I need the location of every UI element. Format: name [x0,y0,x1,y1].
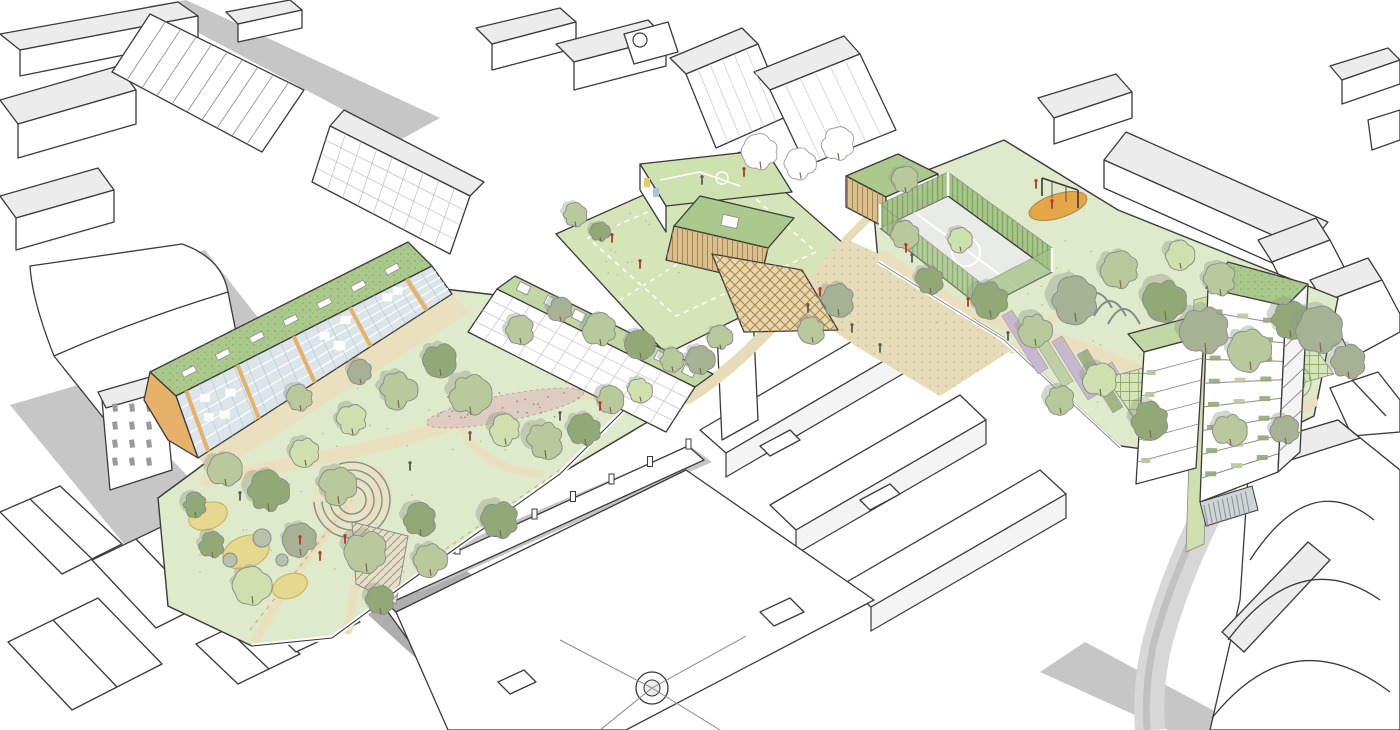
lawn-dot [1041,304,1043,306]
tree-canopy [506,315,534,345]
lawn-dot [627,262,629,264]
lawn-dot [246,529,248,531]
figure-head [850,323,853,326]
lawn-dot [452,449,454,451]
rain-garden-dot [537,403,539,405]
lawn-dot [406,445,408,447]
rain-garden-dot [563,392,565,394]
balcony-planting [1234,399,1245,404]
play-boulder [276,554,288,566]
lawn-dot [911,297,913,299]
balcony-planting [1260,377,1271,382]
lawn-dot [1064,240,1066,242]
balcony-planting [1237,313,1248,318]
balcony-planting [1231,463,1242,468]
balcony-planting [1206,448,1217,453]
lawn-dot [322,433,324,435]
tree-canopy [1330,344,1364,379]
balcony-planting [1208,402,1219,407]
balcony [319,332,329,340]
figure-head [818,287,821,290]
lawn-dot [199,571,201,573]
lawn-dot [1090,251,1092,253]
lawn-dot [629,212,631,214]
lawn-dot [1092,340,1094,342]
balcony-planting [1258,435,1269,440]
lawn-dot [605,261,607,263]
sliver-tr-wall [1368,110,1400,150]
balcony [204,413,214,421]
balcony-planting [1257,455,1268,460]
rain-garden-dot [460,417,462,419]
rain-garden-dot [437,415,439,417]
lawn-dot [504,449,506,451]
figure-head [638,259,641,262]
tree-canopy [422,344,456,378]
lawn-dot [403,571,405,573]
lawn-dot [678,272,680,274]
lawn-dot [357,387,359,389]
masterplan-canvas [0,0,1400,730]
figure-head [966,297,969,300]
lawn-dot [411,494,413,496]
lawn-dot [1068,270,1070,272]
balcony-planting [1210,356,1221,361]
lawn-dot [597,418,599,420]
wall-post [571,492,576,502]
tree [560,200,587,227]
figure-head [1050,199,1053,202]
lawn-dot [271,549,273,551]
balcony-planting [1205,471,1216,476]
rain-garden-dot [502,407,504,409]
balcony [336,343,346,351]
figure-head [700,175,703,178]
wall-post [532,509,537,519]
tree-canopy [1270,415,1299,443]
lawn-dot [1040,285,1042,287]
figure-head [468,431,471,434]
lawn-dot [1097,401,1099,403]
lawn-dot [610,249,612,251]
lawn-dot [935,322,937,324]
lawn-dot [336,445,338,447]
rain-garden-dot [526,412,528,414]
balcony [200,394,210,402]
balcony-planting [1147,370,1156,375]
school-panel [644,178,650,187]
rain-garden-dot [467,414,469,416]
balcony [225,388,235,396]
lawn-dot [300,491,302,493]
balcony-planting [1141,458,1150,463]
lawn-dot [334,568,336,570]
lawn-dot [649,224,651,226]
lawn-dot [615,224,617,226]
figure-head [298,535,301,538]
balcony [220,411,230,419]
rain-garden-dot [516,400,518,402]
lawn-dot [617,274,619,276]
lawn-dot [289,483,291,485]
figure-head [904,243,907,246]
balcony [340,316,350,324]
lawn-dot [199,554,201,556]
cylinder-tower [633,33,647,47]
lawn-dot [945,322,947,324]
lawn-dot [242,529,244,531]
figure-head [910,253,913,256]
rain-garden-dot [440,412,442,414]
lawn-dot [607,272,609,274]
balcony [382,293,392,301]
rain-garden-dot [554,416,556,418]
lawn-dot [386,428,388,430]
lawn-dot [369,425,371,427]
tree-canopy [207,453,242,487]
rain-garden-dot [547,396,549,398]
rain-garden-dot [524,399,526,401]
play-boulder [253,529,271,547]
lawn-dot [1056,267,1058,269]
figure-head [238,491,241,494]
rain-garden-dot [533,403,535,405]
figure-head [598,401,601,404]
figure-head [343,534,346,537]
lawn-dot [906,284,908,286]
balcony-planting [1235,378,1246,383]
lawn-dot [631,261,633,263]
lawn-dot [1139,354,1141,356]
lawn-dot [428,409,430,411]
wall-post [686,439,691,449]
tree-canopy [660,348,683,373]
masterplan-illustration [0,0,1400,730]
lawn-dot [480,441,482,443]
rain-garden-dot [464,416,466,418]
figure-head [318,551,321,554]
rain-garden-dot [498,392,500,394]
figure-head [878,343,881,346]
rain-garden-dot [539,407,541,409]
figure-head [1006,331,1009,334]
figure-head [806,303,809,306]
lawn-dot [1100,344,1102,346]
rain-garden-dot [578,397,580,399]
lawn-dot [645,220,647,222]
balcony-planting [1145,392,1154,397]
figure-head [610,233,613,236]
school-panel [653,188,659,197]
play-boulder [223,553,237,567]
lawn-dot [1027,293,1029,295]
rain-garden-dot [517,411,519,413]
lawn-dot [615,251,617,253]
wall-post [648,457,653,467]
rain-garden-dot [449,415,451,417]
rain-garden-dot [452,410,454,412]
balcony-planting [1209,379,1220,384]
balcony-planting [1259,396,1270,401]
rain-garden-dot [540,412,542,414]
figure-head [742,167,745,170]
balcony-planting [1259,416,1270,421]
figure-head [1034,179,1037,182]
wall-post [609,474,614,484]
balcony [393,287,403,295]
figure-head [558,411,561,414]
figure-head [408,461,411,464]
